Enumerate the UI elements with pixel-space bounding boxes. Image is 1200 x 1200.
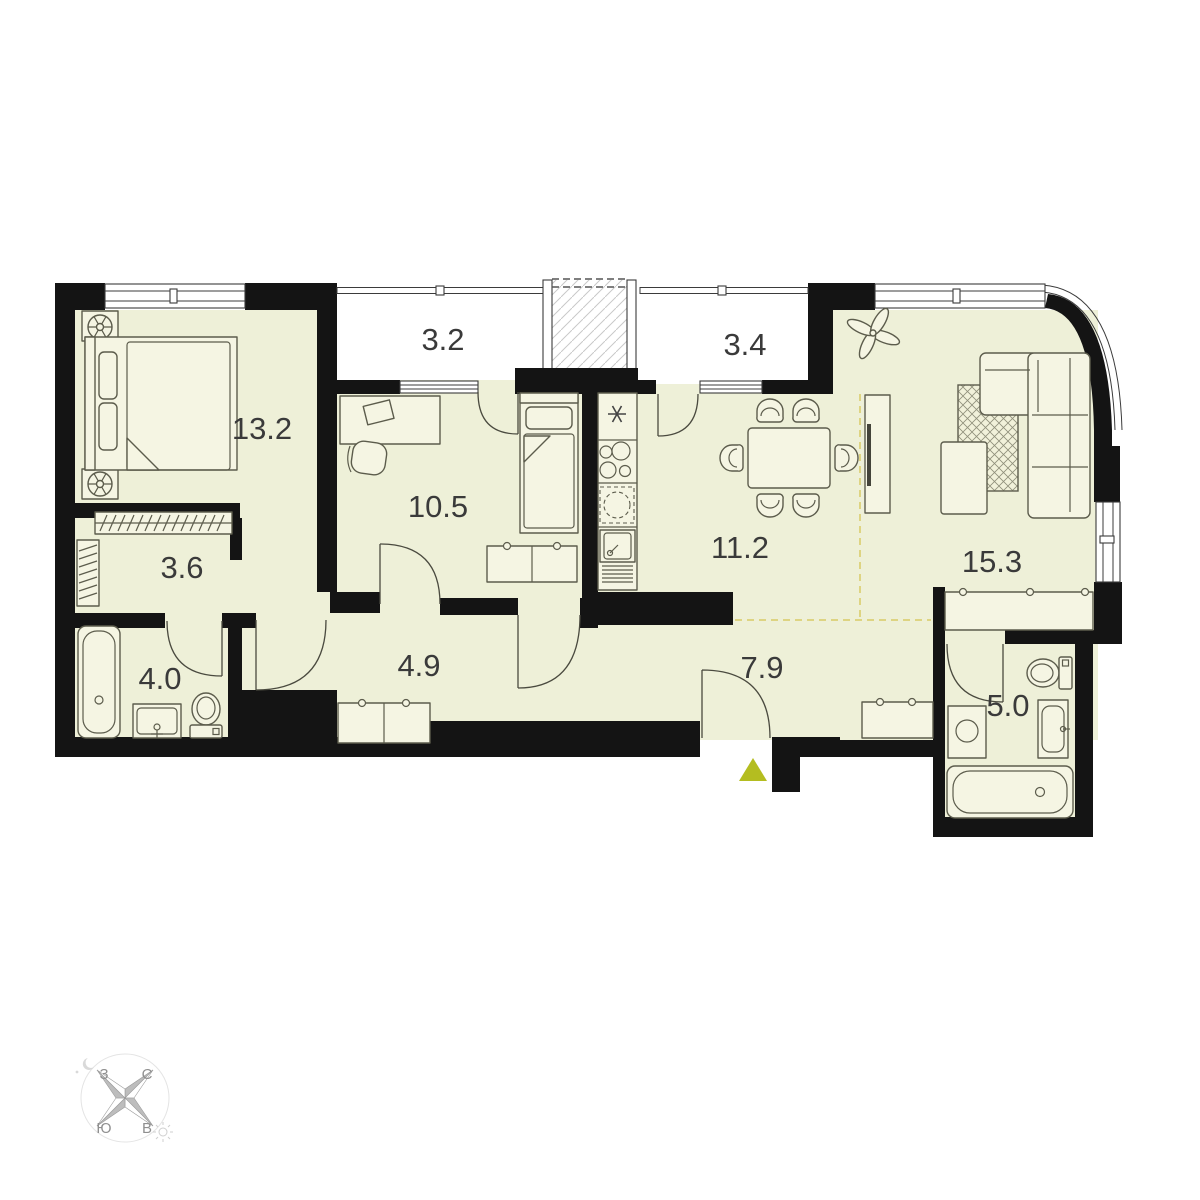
dresser-icon: [487, 543, 577, 583]
floorplan-drawing: 13.2 3.2 3.4 10.5 11.2 15.3 3.6 4.0 4.9 …: [0, 0, 1200, 1200]
bathtub-icon: [78, 626, 120, 738]
room-label-corridor: 7.9: [740, 650, 783, 685]
sink-icon: [1038, 700, 1070, 758]
room-label-kitchen-dining: 11.2: [711, 530, 769, 565]
floorplan-page: 13.2 3.2 3.4 10.5 11.2 15.3 3.6 4.0 4.9 …: [0, 0, 1200, 1200]
living-top-window: [875, 284, 1045, 308]
room-label-bedroom-2: 10.5: [408, 489, 468, 524]
toilet-icon: [1027, 657, 1072, 689]
star-dot-icon: [76, 1071, 79, 1074]
compass-west-label: З: [99, 1066, 108, 1083]
single-bed-icon: [520, 393, 578, 533]
compass-south-label: Ю: [96, 1120, 111, 1137]
living-right-window: [1096, 502, 1120, 582]
compass-north-label: С: [142, 1066, 153, 1083]
room-label-bedroom: 13.2: [232, 411, 292, 446]
room-label-wardrobe: 3.6: [160, 550, 203, 585]
bathtub-icon: [947, 766, 1073, 818]
entrance-arrow-icon: [739, 758, 767, 781]
balcony-right-floor: [635, 283, 808, 384]
lamp-icon: [88, 315, 112, 339]
bedroom-window: [105, 284, 245, 308]
shaft-hatch: [543, 276, 636, 370]
kitchen-window: [700, 381, 762, 393]
sideboard-icon: [945, 589, 1093, 631]
room-label-balcony-left: 3.2: [421, 322, 464, 357]
lamp-icon: [88, 472, 112, 496]
washing-machine-icon: [948, 706, 986, 758]
compass-east-label: В: [142, 1120, 152, 1137]
sink-icon: [133, 704, 181, 738]
toilet-icon: [190, 693, 222, 738]
room-label-balcony-right: 3.4: [723, 327, 766, 362]
moon-icon: [83, 1058, 94, 1070]
compass-rose: З С Ю В: [76, 1054, 173, 1142]
room-label-bathroom-2: 5.0: [986, 688, 1029, 723]
kitchen-sink-icon: [600, 530, 635, 582]
dining-table-icon: [748, 428, 830, 488]
room-label-hallway: 4.9: [397, 648, 440, 683]
kitchen-counter: [598, 393, 637, 590]
room-label-bathroom: 4.0: [138, 661, 181, 696]
hall-cabinet-icon: [338, 700, 430, 744]
desk-icon: [340, 396, 440, 444]
corridor-cabinet-icon: [862, 699, 933, 739]
bedroom2-window: [400, 381, 478, 393]
tv-unit-icon: [865, 395, 890, 513]
double-bed-icon: [85, 337, 237, 470]
sun-icon: [153, 1122, 173, 1142]
coffee-table-icon: [941, 442, 987, 514]
room-label-living-room: 15.3: [962, 544, 1022, 579]
